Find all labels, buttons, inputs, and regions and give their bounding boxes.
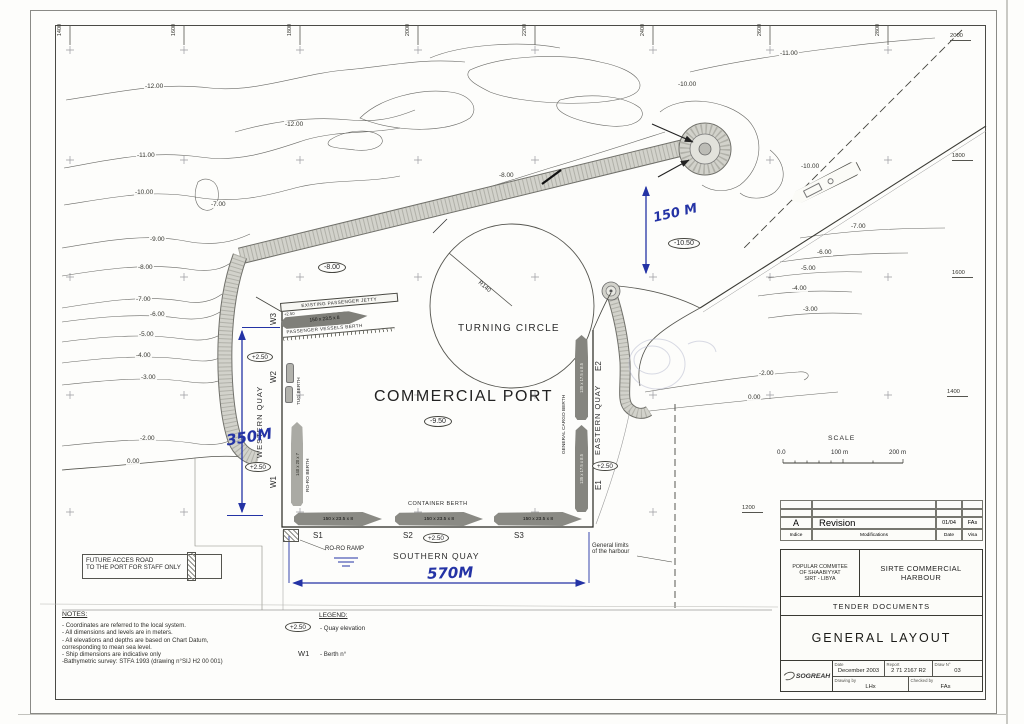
contour-label: -11.00 bbox=[136, 152, 156, 159]
contour-label: -4.00 bbox=[791, 285, 808, 292]
title-block: A Revision 01/04 FAs Indice Modification… bbox=[780, 500, 983, 692]
water-level-symbol bbox=[334, 558, 358, 566]
contour-label: -2.00 bbox=[139, 435, 156, 442]
roro-berth-label: RO-RO BERTH bbox=[306, 436, 311, 492]
passenger-ship-dims: 150 x 23.5 x 8 bbox=[309, 316, 339, 324]
roundhead-arrow-2 bbox=[658, 160, 689, 177]
berth-label-e1: E1 bbox=[594, 476, 603, 490]
draw-number-value: 03 bbox=[933, 668, 982, 674]
roro-ship-dims: 140 x 20 x 7 bbox=[295, 453, 300, 476]
general-cargo-ship: 135 x 17.5 x 8.5 bbox=[575, 425, 588, 512]
east-breakwater-head bbox=[602, 282, 620, 300]
scale-tick-200: 200 m bbox=[889, 449, 906, 456]
contour-label: -10.00 bbox=[134, 189, 154, 196]
legend-berth-desc: - Berth n° bbox=[320, 651, 346, 658]
drawing-by-cell: Drawing by LHx bbox=[833, 677, 909, 691]
contour-label: -5.00 bbox=[800, 265, 817, 272]
berth-label-w3: W3 bbox=[269, 311, 278, 325]
revision-visa-value: FAs bbox=[962, 517, 983, 529]
legend-title: LEGEND: bbox=[319, 612, 348, 619]
tug-berth-label: TUG BERTH bbox=[297, 357, 302, 405]
contour-label: 0.00 bbox=[126, 458, 140, 465]
breakwater-roundhead bbox=[679, 123, 731, 175]
draw-number-label: Draw N° bbox=[935, 662, 951, 667]
drawing-by-label: Drawing by bbox=[835, 678, 857, 683]
future-road-line2: TO THE PORT FOR STAFF ONLY bbox=[86, 564, 218, 571]
grid-label-right: 2000 bbox=[950, 33, 971, 41]
roro-ramp-leader bbox=[298, 538, 328, 552]
general-cargo-ship: 135 x 17.5 x 8.5 bbox=[575, 335, 588, 420]
tug-ship bbox=[285, 386, 293, 403]
revision-modifications-header: Modifications bbox=[812, 529, 936, 541]
eastern-quay-label: EASTERN QUAY bbox=[593, 377, 602, 455]
scale-tick-0: 0.0 bbox=[777, 449, 786, 456]
contour-label: -12.00 bbox=[144, 83, 164, 90]
contour-label: -8.00 bbox=[137, 264, 154, 271]
grid-label-top: 1600 bbox=[171, 19, 177, 41]
note-line: - All dimensions and levels are in meter… bbox=[62, 629, 223, 636]
legend-berth-symbol: W1 bbox=[298, 649, 309, 658]
note-line: - Ship dimensions are indicative only bbox=[62, 651, 223, 658]
grid-label-top: 1800 bbox=[287, 19, 293, 41]
checked-by-cell: Checked by FAs bbox=[909, 677, 982, 691]
future-road-line1: FUTURE ACCES ROAD bbox=[86, 557, 218, 564]
revision-date-value: 01/04 bbox=[936, 517, 962, 529]
contour-label: -7.00 bbox=[135, 296, 152, 303]
contour-label: -2.00 bbox=[758, 370, 775, 377]
ship-dims: 135 x 17.5 x 8.5 bbox=[579, 454, 584, 484]
report-cell: Report 2 71 2167 R2 bbox=[885, 661, 933, 676]
date-cell: Date December 2003 bbox=[833, 661, 885, 676]
logo-cell: SOGREAH bbox=[781, 661, 833, 691]
contour-label: -3.00 bbox=[140, 374, 157, 381]
revision-empty-cell bbox=[936, 509, 962, 517]
ship-dims: 150 x 23.5 x 8 bbox=[523, 517, 553, 522]
scale-tick-100: 100 m bbox=[831, 449, 848, 456]
western-quay-label: WESTERN QUAY bbox=[255, 372, 264, 458]
note-line: - All elevations and depths are based on… bbox=[62, 637, 223, 644]
checked-by-label: Checked by bbox=[911, 678, 934, 683]
elevation-oval-west-top: +2.50 bbox=[247, 352, 273, 362]
contour-label: -6.00 bbox=[149, 311, 166, 318]
draw-number-cell: Draw N° 03 bbox=[933, 661, 982, 676]
scale-bar bbox=[783, 459, 903, 463]
revision-empty-cell bbox=[812, 509, 936, 517]
contour-label: -4.00 bbox=[135, 352, 152, 359]
revision-empty-cell bbox=[780, 509, 812, 517]
depth-oval-entrance: -10.50 bbox=[668, 238, 700, 249]
report-label: Report bbox=[887, 662, 900, 667]
doc-type-cell: TENDER DOCUMENTS bbox=[781, 596, 982, 615]
harbour-limit-diagonal bbox=[742, 30, 962, 250]
elevation-oval-west-bottom: +2.50 bbox=[245, 462, 271, 472]
contour-label: -10.00 bbox=[800, 163, 820, 170]
contour-label: -7.00 bbox=[850, 223, 867, 230]
committee-line: SIRT - LIBYA bbox=[804, 576, 835, 582]
elevation-oval-east: +2.50 bbox=[592, 461, 618, 471]
breakwater-crossing-line bbox=[433, 219, 447, 233]
note-line: -Bathymetric survey: STFA 1993 (drawing … bbox=[62, 658, 223, 665]
grid-label-right: 1200 bbox=[742, 505, 763, 513]
revision-empty-cell bbox=[962, 500, 983, 509]
future-road-note: FUTURE ACCES ROAD TO THE PORT FOR STAFF … bbox=[82, 554, 222, 579]
grid-label-right: 1400 bbox=[947, 389, 968, 397]
note-line: - Coordinates are referred to the local … bbox=[62, 622, 223, 629]
project-line: SIRTE COMMERCIAL bbox=[880, 564, 961, 573]
berth-label-w1: W1 bbox=[269, 474, 278, 488]
note-line: corresponding to mean sea level. bbox=[62, 644, 223, 651]
revision-empty-cell bbox=[780, 500, 812, 509]
signature-row: SOGREAH Date December 2003 Report 2 71 2… bbox=[781, 660, 982, 691]
contour-label: -9.00 bbox=[149, 236, 166, 243]
legend-elevation-desc: - Quay elevation bbox=[320, 625, 365, 632]
berth-label-w2: W2 bbox=[269, 369, 278, 383]
berth-label-s3: S3 bbox=[514, 531, 524, 540]
checked-by-value: FAs bbox=[909, 684, 982, 690]
contour-label: -10.00 bbox=[677, 81, 697, 88]
tug-ship bbox=[286, 363, 294, 383]
legend-elevation-symbol: +2.50 bbox=[285, 622, 311, 632]
general-cargo-berth-label: GENERAL CARGO BERTH bbox=[562, 362, 567, 454]
contour-label: 0.00 bbox=[747, 394, 761, 401]
contour-label: -6.00 bbox=[816, 249, 833, 256]
pencil-scribbles bbox=[629, 339, 716, 389]
contour-label: -5.00 bbox=[138, 331, 155, 338]
contour-label: -7.00 bbox=[210, 201, 227, 208]
ship-funnel bbox=[827, 177, 835, 185]
handwritten-dim-570: 570M bbox=[427, 563, 474, 583]
depth-oval-west: -8.00 bbox=[318, 262, 346, 273]
drawing-title-cell: GENERAL LAYOUT bbox=[781, 615, 982, 660]
grid-label-right: 1800 bbox=[952, 153, 973, 161]
commercial-port-label: COMMERCIAL PORT bbox=[374, 388, 553, 406]
ship-dims: 150 x 23.5 x 8 bbox=[323, 517, 353, 522]
roro-ship: 140 x 20 x 7 bbox=[291, 422, 303, 506]
turning-circle-outline bbox=[430, 224, 594, 388]
roro-ramp-box bbox=[283, 529, 299, 542]
contour-label: -11.00 bbox=[779, 50, 799, 57]
revision-indice-value: A bbox=[780, 517, 812, 529]
grid-label-top: 2800 bbox=[875, 19, 881, 41]
harbour-limits-label: General limits of the harbour bbox=[592, 543, 629, 555]
grid-label-right: 1600 bbox=[952, 270, 973, 278]
date-value: December 2003 bbox=[833, 668, 884, 674]
date-label: Date bbox=[835, 662, 844, 667]
roro-ramp-label: RO-RO RAMP bbox=[325, 546, 364, 552]
revision-visa-header: Visa bbox=[962, 529, 983, 541]
elevation-oval-south: +2.50 bbox=[423, 533, 449, 543]
future-road-stub bbox=[187, 552, 196, 581]
coastal-revetment-shadow bbox=[703, 131, 986, 312]
turning-circle-label: TURNING CIRCLE bbox=[458, 323, 560, 334]
notes-block: NOTES: - Coordinates are referred to the… bbox=[62, 611, 223, 666]
contour-label: -12.00 bbox=[284, 121, 304, 128]
sogreah-logo-text: SOGREAH bbox=[796, 673, 830, 680]
revision-empty-cell bbox=[936, 500, 962, 509]
scanned-drawing-sheet: 1400 1600 1800 2000 2200 2400 2600 2800 … bbox=[0, 0, 1024, 724]
container-berth-label: CONTAINER BERTH bbox=[408, 501, 468, 507]
revision-table: A Revision 01/04 FAs Indice Modification… bbox=[780, 500, 983, 541]
limits-line2: of the harbour bbox=[592, 549, 629, 555]
grid-label-top: 2600 bbox=[757, 19, 763, 41]
report-value: 2 71 2167 R2 bbox=[885, 668, 932, 674]
drawing-by-value: LHx bbox=[833, 684, 908, 690]
berth-label-s2: S2 bbox=[403, 531, 413, 540]
title-block-main: POPULAR COMMITEE OF SHAABIYYAT SIRT - LI… bbox=[780, 549, 983, 692]
ship-dims: 150 x 23.5 x 8 bbox=[424, 517, 454, 522]
notes-title: NOTES: bbox=[62, 611, 223, 618]
ship-dims: 135 x 17.5 x 8.5 bbox=[579, 363, 584, 393]
project-cell: SIRTE COMMERCIAL HARBOUR bbox=[860, 550, 982, 596]
grid-label-top: 2400 bbox=[640, 19, 646, 41]
grid-label-top: 2200 bbox=[522, 19, 528, 41]
southern-quay-label: SOUTHERN QUAY bbox=[393, 551, 480, 561]
contour-label: -3.00 bbox=[802, 306, 819, 313]
revision-date-header: Date bbox=[936, 529, 962, 541]
coastal-revetment-line bbox=[700, 126, 986, 308]
limits-leader bbox=[637, 556, 672, 562]
berth-label-e2: E2 bbox=[594, 357, 603, 371]
project-line: HARBOUR bbox=[901, 573, 941, 582]
grid-label-top: 2000 bbox=[405, 19, 411, 41]
revision-empty-cell bbox=[962, 509, 983, 517]
committee-cell: POPULAR COMMITEE OF SHAABIYYAT SIRT - LI… bbox=[781, 550, 860, 596]
grid-ticks bbox=[70, 25, 888, 45]
revision-empty-cell bbox=[812, 500, 936, 509]
revision-modifications-value: Revision bbox=[812, 517, 936, 529]
depth-oval-basin: -9.50 bbox=[424, 416, 452, 427]
sogreah-logo-swirl bbox=[782, 670, 796, 682]
revision-indice-header: Indice bbox=[780, 529, 812, 541]
scale-title: SCALE bbox=[828, 435, 855, 442]
contour-label: -8.00 bbox=[498, 172, 515, 179]
grid-label-top: 1400 bbox=[57, 19, 63, 41]
